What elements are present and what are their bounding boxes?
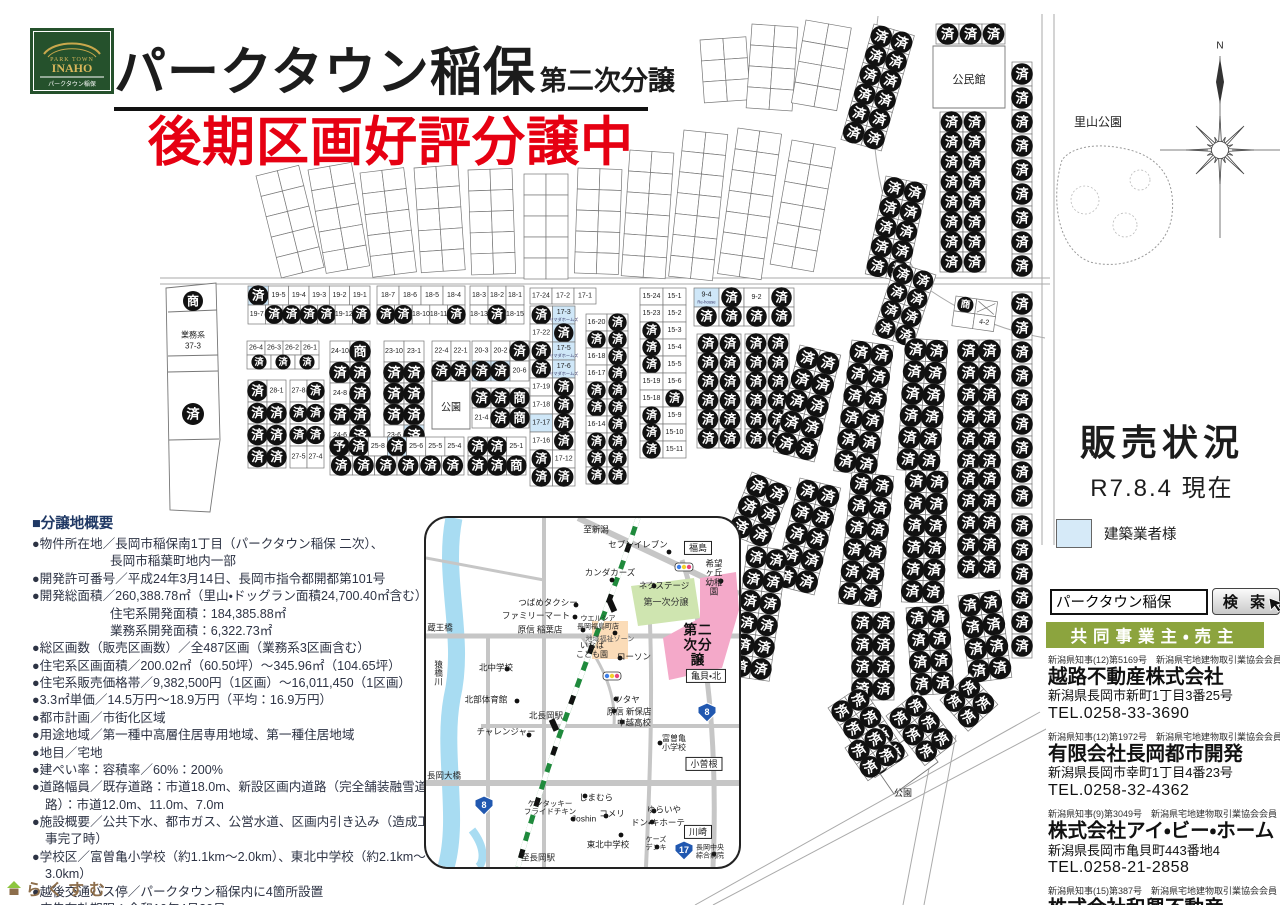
lot-number: 27-4 — [308, 454, 322, 461]
sold-glyph: 済 — [1015, 369, 1029, 384]
sold-glyph: 済 — [302, 356, 312, 367]
sold-glyph: 済 — [293, 405, 305, 419]
sold-glyph: 済 — [1015, 321, 1029, 336]
status-panel: 販売状況 R7.8.4 現在 建築業者様 検 索 共同事業主・売主 新潟県知事(… — [1044, 414, 1280, 905]
lot-cell — [724, 58, 748, 81]
sold-lot-strip: 済済済済済済済済済済済済 — [837, 472, 894, 609]
place-label: 蔵王橋 — [427, 623, 453, 632]
sold-glyph: 済 — [357, 458, 370, 473]
sold-glyph: 済 — [750, 355, 763, 370]
place-label: ツタヤ — [614, 695, 640, 704]
sold-glyph: 済 — [387, 386, 401, 401]
sold-glyph: 済 — [1015, 519, 1029, 534]
sold-glyph: 済 — [868, 543, 884, 560]
lot-cell — [621, 255, 644, 277]
sold-glyph: 済 — [968, 195, 982, 210]
lot-number: 18-4 — [447, 292, 461, 299]
lot-cell — [420, 250, 443, 272]
sold-glyph: 済 — [875, 477, 891, 494]
search-input[interactable] — [1050, 589, 1208, 615]
lot-block: 済済商21-4済商 — [471, 388, 530, 429]
sold-glyph: 済 — [353, 407, 367, 422]
sold-glyph: 済 — [558, 326, 570, 340]
river — [446, 518, 457, 867]
sold-glyph: 済 — [702, 393, 715, 408]
place-label: 北中学校 — [479, 663, 513, 672]
lot-cell — [576, 210, 599, 232]
open-lot-strip — [791, 20, 851, 111]
lot-cell — [718, 253, 743, 277]
lot-number: 18-13 — [470, 311, 488, 318]
place-label: ウエルシア 長岡福島町店 — [577, 615, 619, 630]
sold-glyph: 済 — [612, 315, 624, 329]
lot-number: 19-4 — [292, 292, 306, 299]
sold-lot-strip: 済済済済済済済済済済済済 — [896, 338, 949, 473]
sold-glyph: 済 — [750, 309, 763, 324]
company-license: 新潟県知事(15)第387号 新潟県宅地建物取引業協会会員 — [1048, 887, 1280, 897]
lot-cell — [803, 185, 828, 210]
sold-glyph: 済 — [932, 630, 947, 647]
sold-glyph: 済 — [968, 235, 982, 250]
lot-cell — [312, 187, 337, 212]
sold-glyph: 済 — [856, 659, 870, 675]
sold-glyph: 済 — [865, 565, 881, 582]
lot-cell — [439, 207, 462, 229]
sold-glyph: 済 — [772, 374, 785, 389]
sold-glyph: 済 — [558, 434, 570, 448]
sold-glyph: 済 — [945, 215, 959, 230]
sold-glyph: 済 — [268, 307, 280, 321]
lot-cell — [771, 68, 795, 91]
lot-number: 22-4 — [434, 348, 448, 355]
poi-dot — [610, 578, 615, 583]
sold-glyph: 済 — [983, 559, 997, 575]
sold-lot-strip: 済済済済済済済済済 — [1011, 292, 1033, 508]
place-label: 至長岡駅 — [521, 853, 555, 862]
sold-glyph: 済 — [962, 453, 976, 469]
builder-lot-legend-label: 建築業者様 — [1104, 523, 1177, 544]
sold-glyph: 済 — [850, 365, 866, 383]
sold-glyph: 済 — [591, 451, 603, 465]
sold-glyph: 商 — [510, 458, 522, 473]
park-texture — [1130, 170, 1150, 190]
place-label: 長岡大橋 — [427, 771, 461, 780]
sold-glyph: 済 — [724, 374, 737, 389]
lot-cell — [440, 228, 463, 250]
sold-glyph: 済 — [750, 393, 763, 408]
sold-glyph: 済 — [1015, 465, 1029, 480]
overview-item: ●総区画数（販売区画数）／全487区画（業務系3区画含む） — [32, 640, 430, 657]
lot-number: 17-1 — [578, 293, 592, 300]
sold-glyph: 済 — [700, 309, 713, 324]
traffic-light-icon — [675, 563, 693, 571]
lot-number: 18-6 — [403, 292, 417, 299]
lot-cell — [492, 231, 515, 253]
sold-glyph: 済 — [911, 631, 926, 648]
overview-item: ●開発許可番号／平成24年3月14日、長岡市指令都開都第101号 — [32, 571, 430, 588]
sold-glyph: 商 — [187, 293, 199, 308]
sold-glyph: 済 — [1015, 567, 1029, 582]
sold-lot-strip: 済済済済済済済済済済 — [957, 468, 1001, 579]
sold-glyph: 済 — [983, 343, 997, 359]
sold-glyph: 済 — [1015, 615, 1029, 630]
sold-glyph: 済 — [987, 27, 1001, 42]
lot-cell — [491, 210, 514, 232]
lot-cell — [699, 174, 723, 197]
company-name: 越路不動産株式会社 — [1048, 666, 1280, 688]
lot-cell — [757, 131, 782, 155]
lot-cell — [806, 165, 831, 190]
lot-number: 23-10 — [385, 348, 403, 355]
lot-cell — [754, 152, 779, 176]
sold-glyph: 済 — [772, 393, 785, 408]
sold-glyph: 済 — [724, 355, 737, 370]
sold-lot-strip: 済済済済済済済済済 — [1011, 62, 1033, 278]
sold-glyph: 済 — [356, 307, 368, 321]
place-label: カンダカーズ — [585, 568, 636, 577]
lot-number: 26-1 — [303, 345, 317, 352]
sold-glyph: 済 — [724, 431, 737, 446]
lot-number: 18-3 — [472, 292, 486, 299]
sold-glyph: 済 — [844, 408, 860, 426]
lot-number: 17-17 — [532, 420, 550, 427]
place-label: 猿橋川 — [433, 660, 442, 686]
lot-number: 17-3 — [557, 309, 571, 316]
lot-cell — [648, 193, 671, 215]
sold-glyph: 済 — [494, 390, 507, 405]
overview-item: ●物件所在地／長岡市稲保南1丁目（パークタウン稲保 二次）、 — [32, 536, 430, 553]
sold-glyph: 済 — [1015, 67, 1029, 82]
sold-glyph: 済 — [558, 470, 570, 484]
company-license: 新潟県知事(9)第3049号 新潟県宅地建物取引業協会会員 — [1048, 810, 1280, 820]
open-lot-strip — [574, 168, 622, 274]
lot-number: 26-3 — [267, 345, 281, 352]
lot-cell — [795, 61, 821, 86]
place-label: チャレンジャー — [477, 727, 536, 736]
open-lot-strip — [414, 165, 465, 273]
lot-cell — [337, 204, 362, 229]
lot-cell — [624, 213, 647, 235]
lot-cell — [524, 174, 546, 195]
sold-glyph: 済 — [353, 439, 366, 454]
sold-lot-strip: 済済済済済済済済済済済済 — [833, 340, 895, 477]
sold-glyph: 済 — [962, 471, 976, 487]
sold-glyph: 済 — [1015, 345, 1029, 360]
sold-glyph: 済 — [906, 561, 921, 577]
sold-glyph: 済 — [535, 344, 547, 358]
place-label: ローソン — [617, 652, 651, 661]
sold-lot-strip: 済済済済済済済済 — [905, 605, 955, 697]
sold-glyph: 済 — [989, 637, 1005, 655]
lot-block: 15-2415-115-2315-2済15-3済15-4済15-515-1915… — [640, 288, 686, 459]
sold-glyph: 済 — [910, 609, 925, 626]
sold-glyph: 済 — [983, 493, 997, 509]
overview-item: ●地目／宅地 — [32, 745, 430, 762]
sold-glyph: 済 — [901, 450, 916, 467]
lot-number: 22-1 — [453, 348, 467, 355]
lot-block: 22-422-1済済 — [431, 341, 471, 381]
lot-cell — [415, 187, 438, 209]
search-button[interactable]: 検 索 — [1212, 588, 1280, 615]
lot-cell — [749, 45, 773, 68]
sold-glyph: 済 — [475, 390, 488, 405]
sold-glyph: 済 — [494, 410, 507, 425]
overview-item: ●3.3㎡単価／14.5万円～18.9万円（平均：16.9万円） — [32, 692, 430, 709]
sold-glyph: 済 — [908, 341, 923, 358]
sold-glyph: 済 — [293, 427, 305, 441]
lot-number: 15-2 — [667, 310, 681, 317]
sold-glyph: 済 — [612, 349, 624, 363]
lot-cell — [792, 247, 817, 272]
place-label: 原信 新保店 — [607, 707, 652, 716]
lot-number: 28-1 — [269, 388, 283, 395]
sold-lot-strip: 済済済済済済済済済済済済 — [957, 340, 1001, 473]
sold-glyph: 済 — [333, 407, 347, 422]
lot-block: 18-718-618-518-4済済18-1018-11済 — [376, 286, 465, 324]
sold-glyph: 済 — [983, 515, 997, 531]
open-lot-strip — [700, 37, 750, 103]
sold-glyph: 済 — [387, 407, 401, 422]
satoyama-park-area — [1057, 146, 1173, 264]
lot-cell — [777, 202, 802, 227]
sold-glyph: 済 — [877, 659, 891, 675]
company-address: 新潟県長岡市亀貝町443番地4 — [1048, 843, 1280, 859]
sold-glyph: 済 — [558, 398, 570, 412]
sold-glyph: 済 — [251, 427, 264, 442]
sold-glyph: 済 — [251, 383, 264, 398]
sold-glyph: 済 — [646, 340, 658, 354]
sold-glyph: 済 — [851, 497, 867, 514]
lot-cell — [643, 256, 666, 278]
map-label: 里山公園 — [1074, 115, 1122, 129]
place-label: しまむら — [579, 793, 613, 802]
route-number: 17 — [679, 845, 689, 855]
lot-cell — [671, 234, 695, 257]
lot-cell — [442, 249, 465, 271]
sold-glyph: 済 — [877, 681, 891, 697]
sold-glyph: 済 — [945, 255, 959, 270]
place-label: いなば こども園 — [576, 642, 608, 660]
lot-number: 9-2 — [751, 294, 761, 301]
sold-glyph: 済 — [353, 386, 367, 401]
lot-cell — [546, 174, 568, 195]
sold-glyph: 済 — [1015, 441, 1029, 456]
lot-cell — [469, 190, 492, 212]
parcel-marker: 済 — [182, 403, 204, 425]
sold-glyph: 済 — [535, 470, 547, 484]
lot-number: 20-2 — [493, 348, 507, 355]
place-label: 中越高校 — [617, 718, 651, 727]
rakusumu-logo-text: らくすむ — [26, 876, 110, 900]
sold-glyph: 済 — [927, 561, 942, 577]
sold-glyph: 済 — [750, 374, 763, 389]
lot-number: 26-2 — [285, 345, 299, 352]
place-label: 富曽亀 小学校 — [662, 735, 686, 753]
sales-status-date: R7.8.4 現在 — [1044, 468, 1280, 503]
lot-builder-note: ヤマダホームズ — [549, 316, 578, 323]
sold-glyph: 済 — [968, 135, 982, 150]
lot-cell — [723, 37, 747, 60]
overview-item: ●建ぺい率：容積率／60%：200% — [32, 762, 430, 779]
lot-cell — [417, 208, 440, 230]
lot-cell — [726, 190, 751, 214]
sold-lot-strip: 済済済済済済 — [1011, 514, 1033, 658]
sold-glyph: 済 — [1015, 417, 1029, 432]
sold-glyph: 済 — [908, 495, 923, 511]
lot-block: 23-1023-1済済済済済済23-6済 — [383, 341, 425, 446]
sold-glyph: 済 — [983, 431, 997, 447]
lot-cell — [363, 191, 387, 215]
lot-number: 20-3 — [474, 348, 488, 355]
sold-glyph: 済 — [398, 307, 410, 321]
lot-number: 15-3 — [667, 327, 681, 334]
lot-cell — [546, 237, 568, 258]
sold-glyph: 済 — [646, 425, 658, 439]
park-town-inaho-logo: PARK TOWN INAHO パークタウン稲保 — [30, 28, 114, 94]
lot-cell — [799, 206, 824, 231]
overview-item: ●開発総面積／260,388.78㎡（里山・ドッグラン面積24,700.40㎡含… — [32, 588, 430, 605]
sold-lot-strip: 済済済済済済済済済済済済 — [697, 333, 741, 449]
sold-glyph: 済 — [612, 383, 624, 397]
sold-glyph: 済 — [750, 431, 763, 446]
map-label: N — [1216, 41, 1223, 52]
sold-glyph: 済 — [353, 365, 367, 380]
lot-cell — [773, 26, 797, 49]
sold-glyph: 済 — [928, 539, 943, 555]
sold-glyph: 済 — [983, 387, 997, 403]
lot-cell — [748, 66, 772, 89]
place-box-label: 福島 — [684, 541, 712, 555]
lot-cell — [319, 228, 344, 253]
lot-cell — [751, 24, 775, 47]
overview-item: ●住宅系区画面積／200.02㎡（60.50坪）～345.96㎡（104.65坪… — [32, 658, 430, 675]
sold-glyph: 済 — [646, 323, 658, 337]
lot-cell — [729, 170, 754, 194]
company-license: 新潟県知事(12)第1972号 新潟県宅地建物取引業協会会員 — [1048, 733, 1280, 743]
sold-glyph: 済 — [968, 115, 982, 130]
sold-glyph: 済 — [1015, 591, 1029, 606]
poi-dot — [619, 833, 624, 838]
lot-block: 商4-2 — [952, 295, 998, 331]
svg-text:パークタウン稲保: パークタウン稲保 — [48, 80, 96, 88]
lot-block: 20-320-2済済済20-6 — [471, 341, 530, 382]
route-shield: 17 — [675, 841, 693, 860]
sold-glyph: 済 — [380, 307, 392, 321]
place-box-label: 川崎 — [684, 825, 712, 839]
lot-block: 予済25-8済25-625-525-4済済済済済済 — [329, 436, 464, 476]
lot-cell — [745, 214, 770, 238]
sold-glyph: 済 — [591, 468, 603, 482]
sold-glyph: 済 — [270, 427, 283, 442]
overview-item: ●都市計画／市街化区域 — [32, 710, 430, 727]
sold-glyph: 済 — [775, 290, 788, 305]
sold-glyph: 済 — [856, 637, 870, 653]
overview-item: 業務系開発面積：6,322.73㎡ — [32, 623, 430, 640]
sold-glyph: 済 — [945, 115, 959, 130]
sold-glyph: 済 — [863, 586, 879, 603]
lot-cell — [673, 214, 697, 237]
route-number: 8 — [704, 707, 709, 717]
sold-glyph: 済 — [724, 412, 737, 427]
sold-glyph: 済 — [962, 596, 978, 614]
overview-item: 長岡市稲葉町地内一部 — [32, 553, 430, 570]
sold-glyph: 済 — [591, 400, 603, 414]
lot-number: 19-5 — [271, 292, 285, 299]
lot-cell — [746, 87, 770, 110]
lot-number: 23-1 — [407, 348, 421, 355]
sold-glyph: 済 — [1015, 235, 1029, 250]
lot-cell — [392, 251, 416, 275]
company-tel: TEL.0258-32-4362 — [1048, 781, 1280, 800]
sold-glyph: 済 — [935, 674, 950, 691]
sold-glyph: 済 — [983, 365, 997, 381]
lot-cell — [720, 232, 745, 256]
lot-number: 18-5 — [425, 292, 439, 299]
place-label: ドン・キホーテ — [631, 818, 685, 827]
rakusumu-logo: らくすむ — [6, 876, 110, 900]
sold-glyph: 済 — [724, 336, 737, 351]
lot-cell — [814, 86, 840, 111]
lot-cell — [774, 223, 799, 248]
lot-number: 26-4 — [249, 345, 263, 352]
map-label: 公園 — [894, 788, 912, 798]
lot-block: 18-318-218-118-13済18-15 — [470, 286, 524, 324]
sold-glyph: 済 — [750, 412, 763, 427]
lot-cell — [701, 59, 725, 82]
route-number: 8 — [481, 800, 486, 810]
overview-item: ●施設概要／公共下水、都市ガス、公営水道、区画内引き込み（造成工事完了時） — [32, 814, 430, 849]
lot-number: 18-15 — [506, 311, 524, 318]
place-label: 第二次分譲 — [678, 624, 719, 669]
overview-item: 住宅系開発面積：184,385.88㎡ — [32, 606, 430, 623]
sold-glyph: 済 — [907, 363, 922, 380]
lot-cell — [821, 45, 847, 70]
place-label: 第一次分譲 — [643, 598, 688, 608]
lot-cell — [799, 41, 825, 66]
lot-cell — [739, 256, 764, 280]
sold-glyph: 済 — [702, 355, 715, 370]
open-lot-strip — [669, 130, 728, 281]
lot-cell — [626, 192, 649, 214]
sold-glyph: 済 — [968, 215, 982, 230]
lot-cell — [645, 235, 668, 257]
lot-cell — [701, 153, 725, 176]
place-label: 東北中学校 — [587, 840, 630, 849]
sold-glyph: 済 — [964, 27, 978, 42]
sold-glyph: 済 — [872, 499, 888, 516]
sold-glyph: 済 — [1015, 393, 1029, 408]
sold-glyph: 済 — [724, 393, 737, 408]
sold-glyph: 済 — [838, 452, 854, 470]
lot-number: 20-6 — [512, 368, 526, 375]
map-label: 公園 — [441, 402, 461, 414]
sold-glyph: 済 — [968, 175, 982, 190]
lot-number: 19-7 — [250, 311, 264, 318]
poi-dot — [515, 699, 520, 704]
sold-glyph: 済 — [772, 336, 785, 351]
sold-glyph: 済 — [278, 356, 288, 367]
sold-glyph: 済 — [424, 458, 437, 473]
sold-glyph: 済 — [909, 473, 924, 489]
overview-item: ●道路幅員／既存道路：市道18.0m、新設区画内道路（完全舗装融雪道路）：市道1… — [32, 779, 430, 814]
lot-number: 17-16 — [532, 438, 550, 445]
lot-cell — [735, 128, 760, 152]
sellers-heading: 共同事業主・売主 — [1046, 622, 1264, 648]
sold-glyph: 済 — [725, 290, 738, 305]
sold-glyph: 済 — [986, 615, 1002, 633]
sold-glyph: 済 — [725, 309, 738, 324]
sold-glyph: 済 — [612, 468, 624, 482]
